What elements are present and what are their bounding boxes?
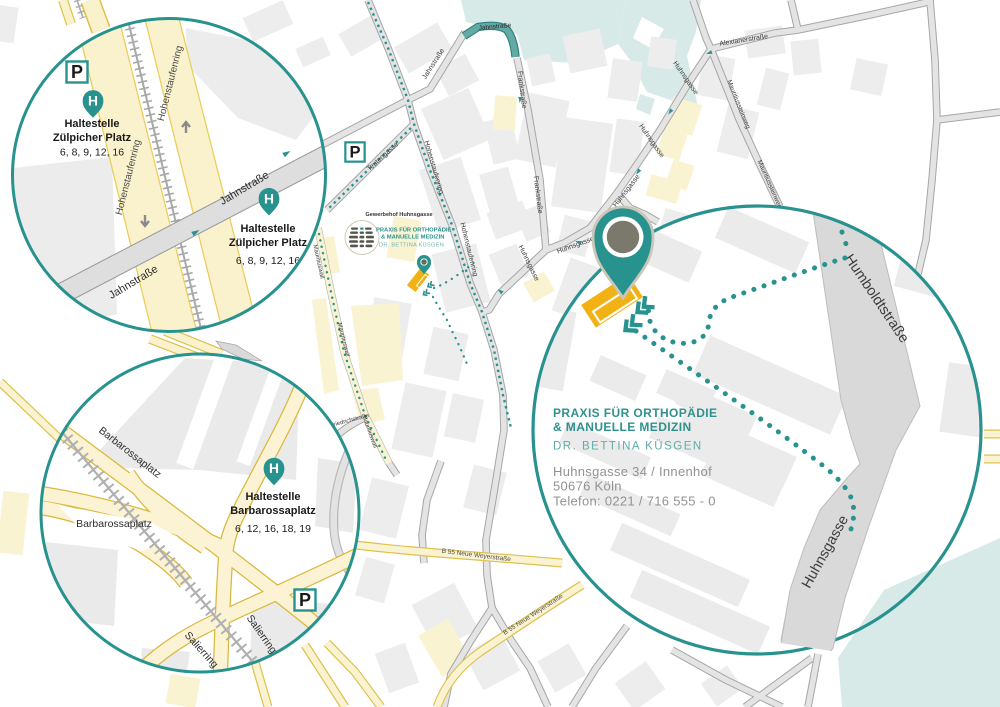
svg-text:Huhnsgasse 34 / Innenhof: Huhnsgasse 34 / Innenhof	[553, 464, 712, 479]
svg-text:& MANUELLE MEDIZIN: & MANUELLE MEDIZIN	[381, 235, 444, 241]
svg-text:Telefon: 0221 / 716 555 - 0: Telefon: 0221 / 716 555 - 0	[553, 494, 716, 509]
svg-text:Barbarossaplatz: Barbarossaplatz	[230, 505, 316, 517]
svg-text:Zülpicher Platz: Zülpicher Platz	[53, 132, 132, 144]
svg-text:6, 12, 16, 18, 19: 6, 12, 16, 18, 19	[235, 523, 311, 535]
svg-text:Zülpicher Platz: Zülpicher Platz	[229, 237, 308, 249]
svg-text:Haltestelle: Haltestelle	[240, 223, 295, 235]
svg-text:Barbarossaplatz: Barbarossaplatz	[76, 518, 152, 530]
svg-text:6, 8, 9, 12, 16: 6, 8, 9, 12, 16	[236, 255, 300, 267]
svg-text:Gewerbehof Huhnsgasse: Gewerbehof Huhnsgasse	[365, 212, 432, 218]
svg-text:PRAXIS FÜR ORTHOPÄDIE: PRAXIS FÜR ORTHOPÄDIE	[553, 405, 717, 420]
svg-text:6, 8, 9, 12, 16: 6, 8, 9, 12, 16	[60, 147, 124, 159]
svg-text:50676 Köln: 50676 Köln	[553, 479, 622, 494]
svg-text:PRAXIS FÜR ORTHOPÄDIE: PRAXIS FÜR ORTHOPÄDIE	[376, 227, 451, 234]
svg-text:DR. BETTINA KÜSGEN: DR. BETTINA KÜSGEN	[379, 242, 444, 249]
svg-text:Haltestelle: Haltestelle	[64, 118, 119, 130]
svg-text:DR. BETTINA KÜSGEN: DR. BETTINA KÜSGEN	[553, 441, 703, 453]
svg-text:Haltestelle: Haltestelle	[245, 491, 300, 503]
svg-text:& MANUELLE MEDIZIN: & MANUELLE MEDIZIN	[553, 420, 692, 434]
